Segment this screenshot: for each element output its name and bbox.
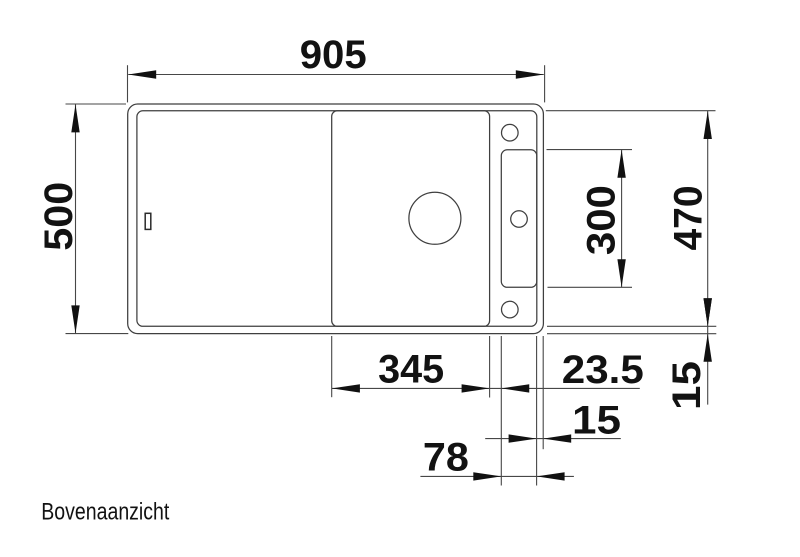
svg-text:905: 905 — [300, 32, 367, 77]
svg-text:78: 78 — [423, 435, 469, 480]
svg-text:15: 15 — [664, 361, 709, 410]
svg-text:15: 15 — [572, 397, 621, 442]
svg-text:Bovenaanzicht: Bovenaanzicht — [41, 500, 169, 526]
svg-text:300: 300 — [578, 185, 623, 255]
svg-text:470: 470 — [666, 186, 711, 251]
svg-text:500: 500 — [36, 182, 81, 251]
svg-text:23.5: 23.5 — [562, 347, 644, 392]
svg-text:345: 345 — [378, 347, 444, 392]
